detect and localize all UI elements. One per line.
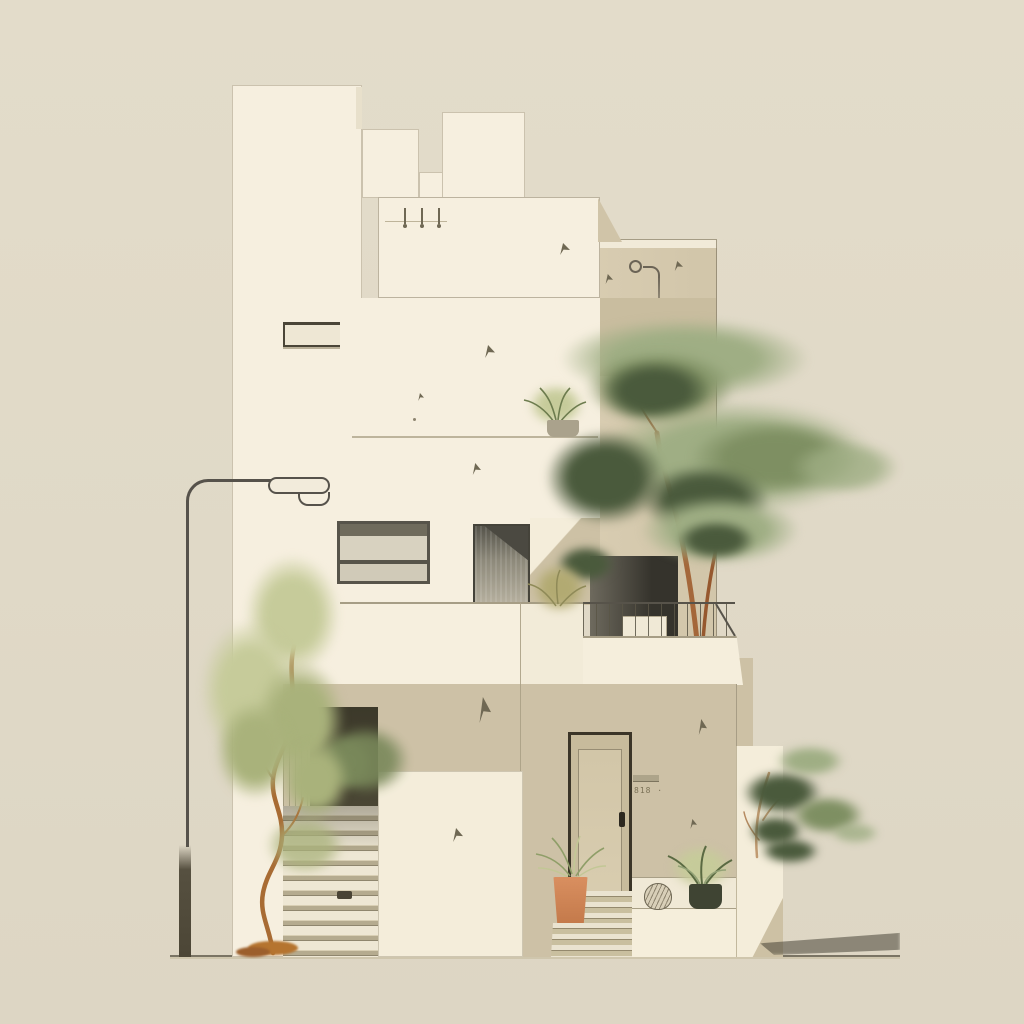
illustration-canvas: 818 · <box>0 0 1024 1024</box>
lower-fern-strokes <box>0 0 1024 1024</box>
